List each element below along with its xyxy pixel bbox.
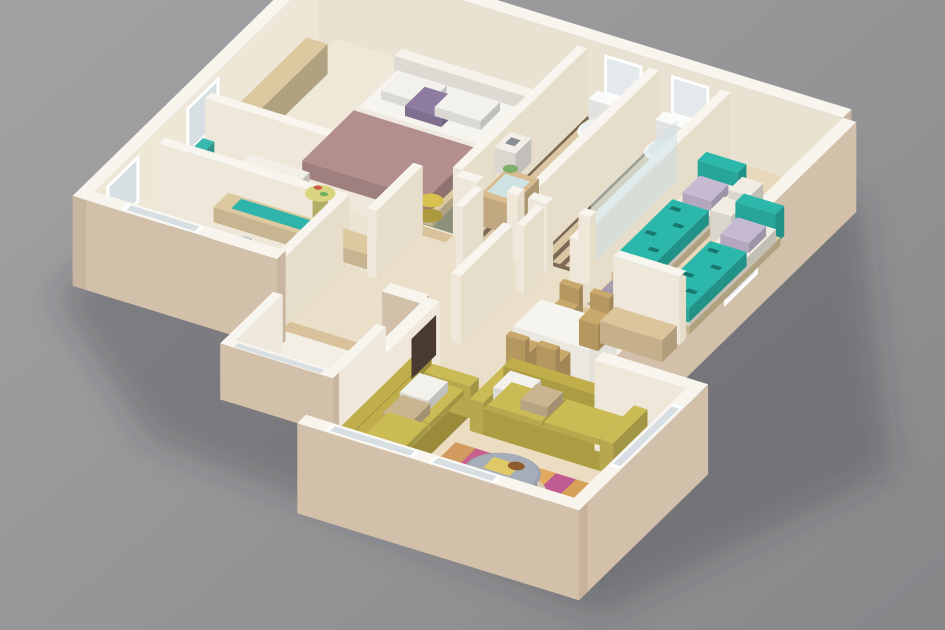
wall-living-south-face: [579, 502, 588, 600]
wall-bath2-front-a-face: [547, 198, 553, 272]
wall-bath2-front-b-face: [590, 211, 596, 285]
sofa-north-arm-w-face: [470, 399, 483, 435]
wall-kids-south-face: [680, 271, 686, 345]
wall-vestibule-fin-2-face: [517, 224, 525, 294]
wall-connector-north-face: [700, 384, 709, 482]
apartment-isometric-scene: [0, 0, 945, 630]
wall-study-east-face: [367, 208, 377, 279]
wall-bath2-front-b: [579, 208, 597, 286]
wall-dining-west-face: [451, 273, 461, 344]
wall-northwest-face: [73, 196, 86, 290]
wall-bath2-front-b-face: [579, 214, 591, 286]
floorplan-3d-render: [0, 0, 945, 630]
